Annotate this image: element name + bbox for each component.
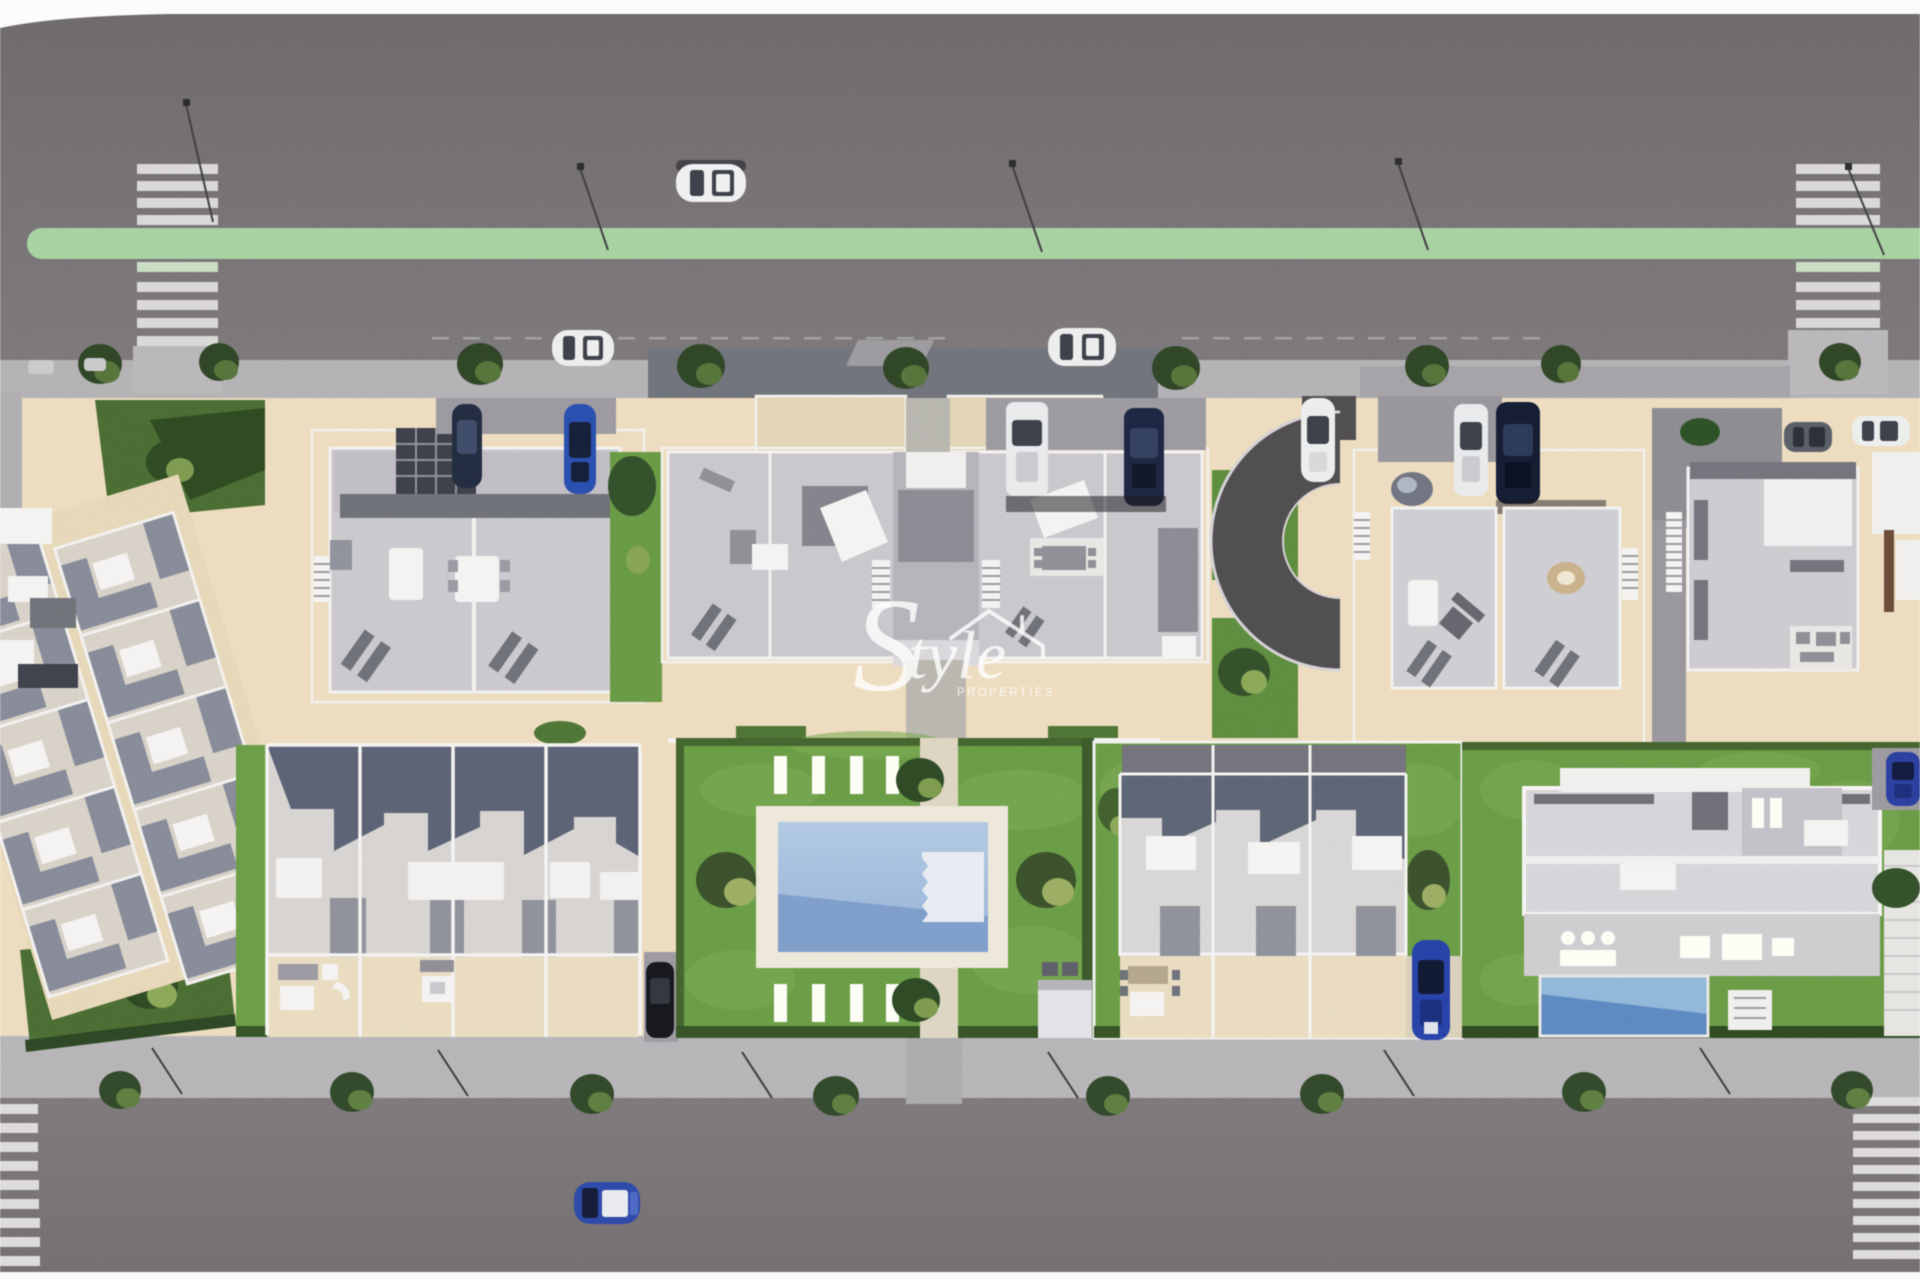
svg-text:PROPERTIES: PROPERTIES xyxy=(957,687,1055,699)
